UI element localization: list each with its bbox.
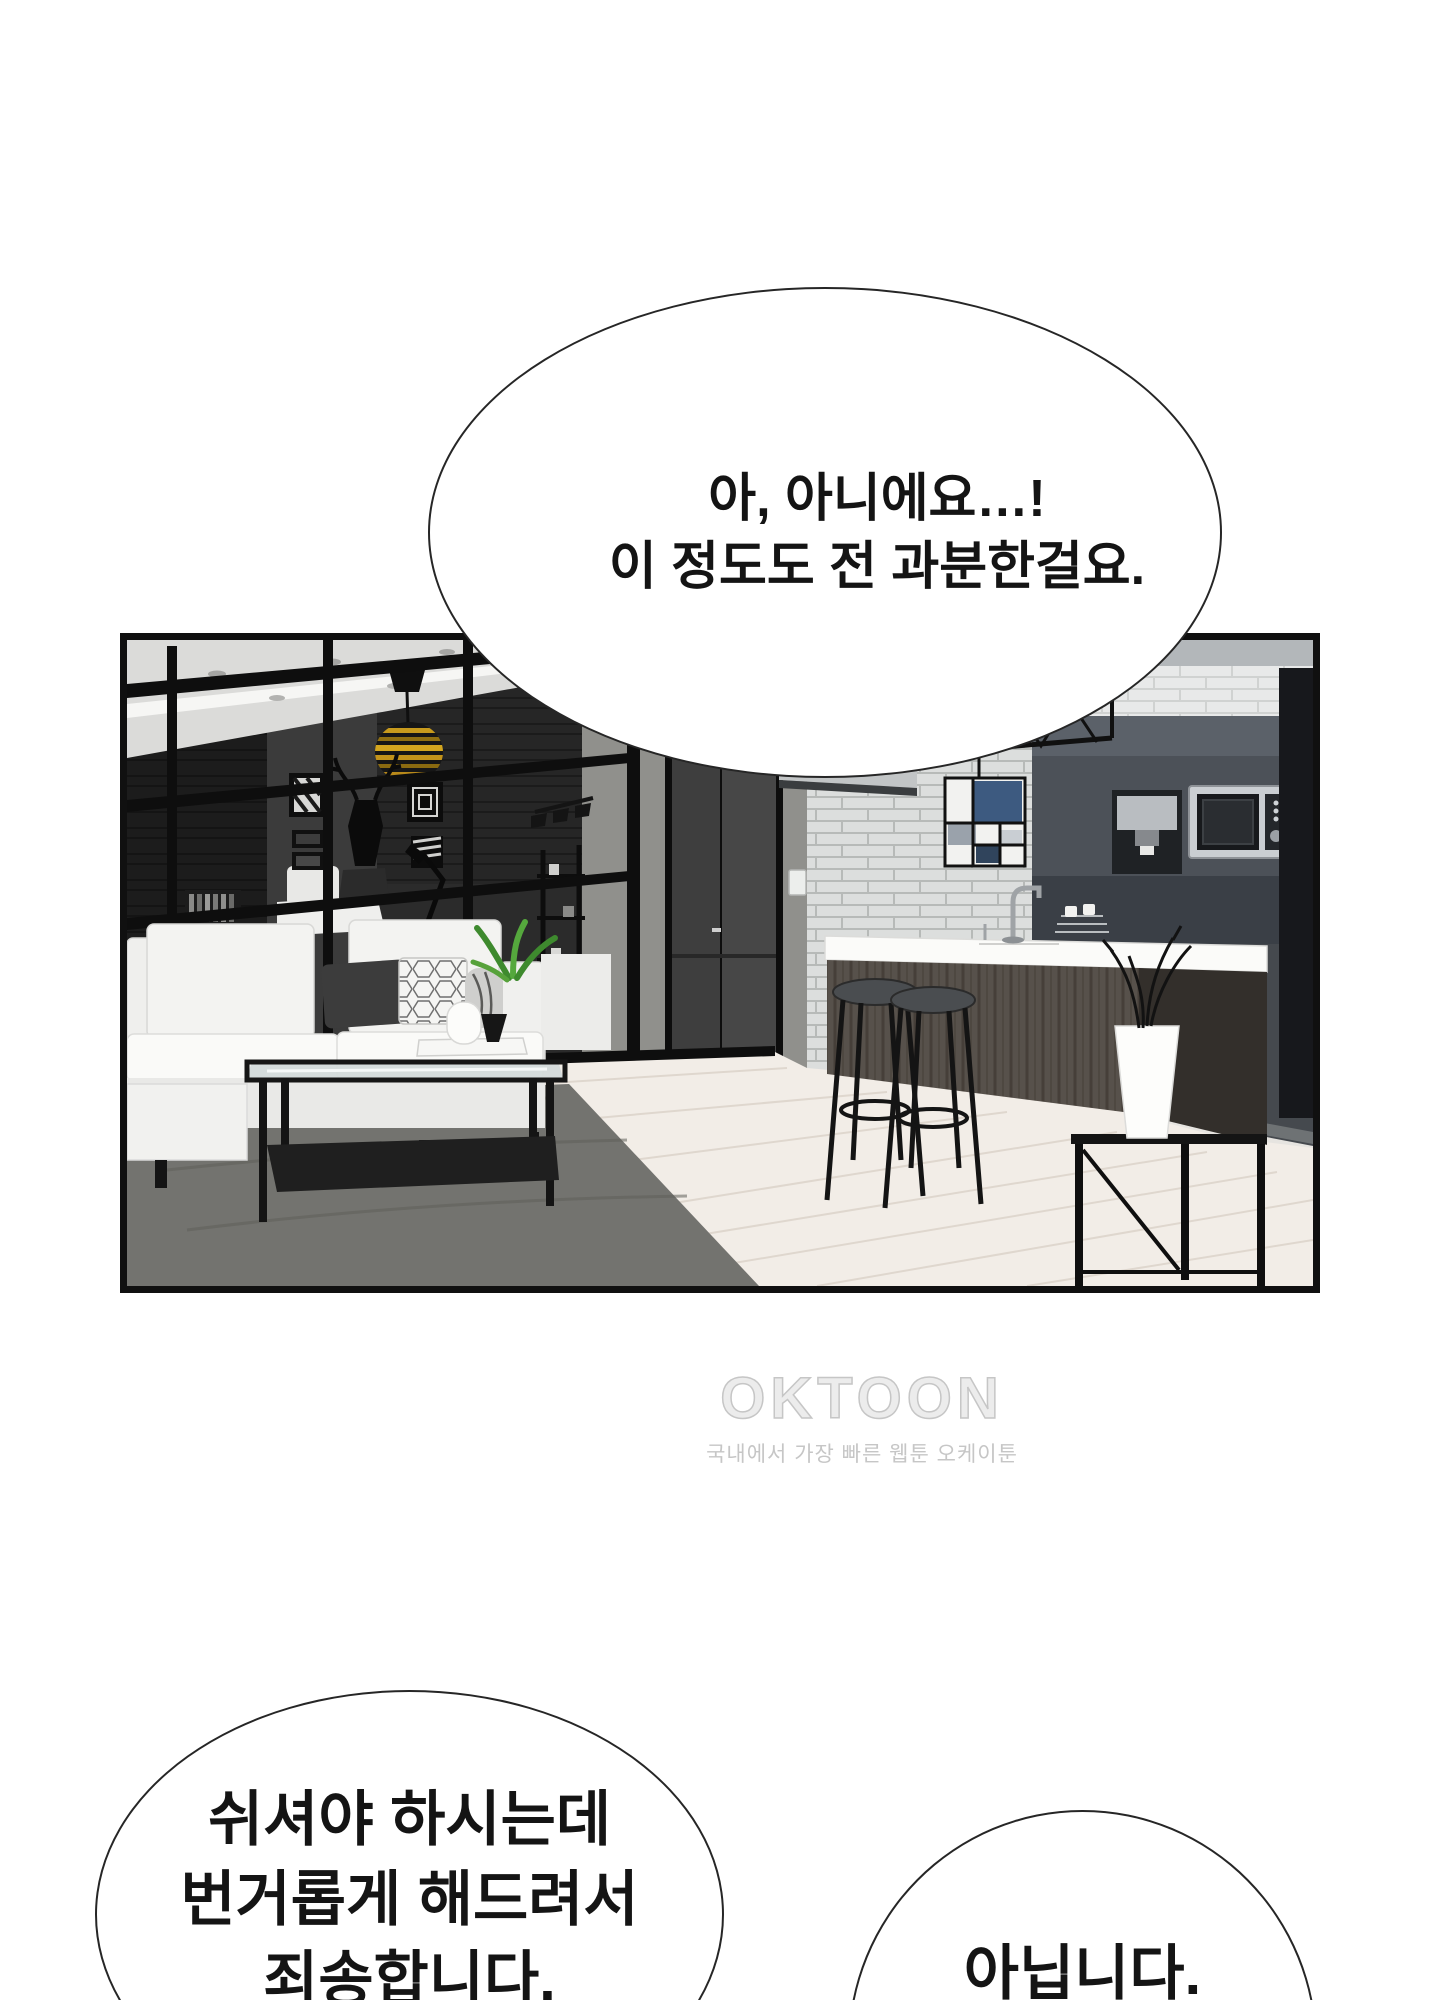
- speech-bubble-bottom-left: 쉬셔야 하시는데 번거롭게 해드려서 죄송합니다.: [95, 1690, 724, 2000]
- speech-bubble-bottom-right: 아닙니다.: [848, 1810, 1317, 2000]
- oktoon-watermark-tagline: 국내에서 가장 빠른 웹툰 오케이툰: [706, 1442, 1018, 1468]
- white-vase: [447, 1002, 481, 1044]
- speech-bubble-top-text: 아, 아니에요…! 이 정도도 전 과분한걸요.: [609, 465, 1145, 601]
- speech-line: 번거롭게 해드려서: [180, 1860, 638, 1940]
- speech-line: 죄송합니다.: [180, 1940, 638, 2000]
- oktoon-watermark-logo: OKTOON: [720, 1370, 1004, 1428]
- speech-line: 이 정도도 전 과분한걸요.: [609, 533, 1145, 601]
- speech-line: 쉬셔야 하시는데: [180, 1780, 638, 1860]
- speech-bubble-bottom-left-text: 쉬셔야 하시는데 번거롭게 해드려서 죄송합니다.: [180, 1780, 638, 2000]
- microwave: [1189, 786, 1293, 858]
- webtoon-page: OKTOON 국내에서 가장 빠른 웹툰 오케이툰 아, 아니에요…! 이 정도…: [0, 0, 1440, 2000]
- speech-bubble-bottom-right-text: 아닙니다.: [964, 1944, 1201, 2000]
- speech-line: 아닙니다.: [964, 1944, 1201, 2000]
- speech-bubble-top: 아, 아니에요…! 이 정도도 전 과분한걸요.: [428, 287, 1222, 778]
- light-switch: [789, 870, 806, 895]
- right-frame-strip: [1279, 668, 1313, 1118]
- speech-line: 아, 아니에요…!: [609, 465, 1145, 533]
- coffee-machine: [1112, 790, 1182, 874]
